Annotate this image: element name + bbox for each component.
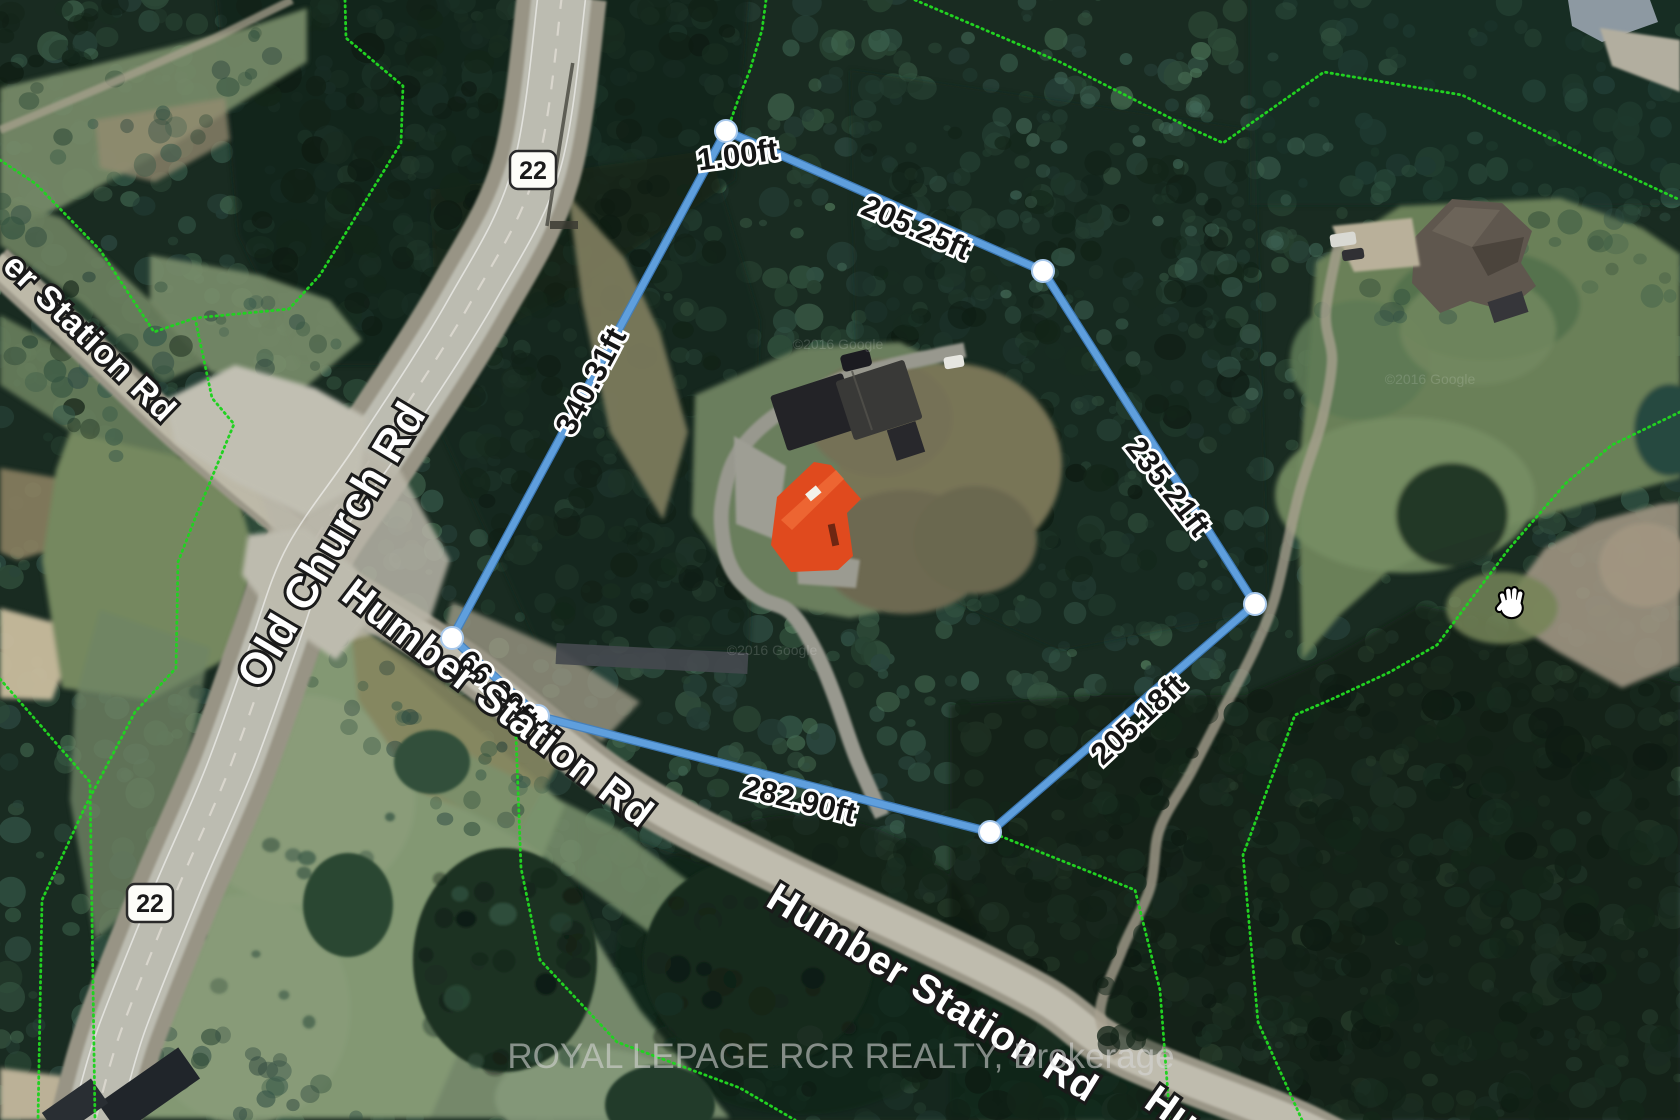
svg-text:©2016 Google: ©2016 Google [727,642,818,658]
svg-text:©2016 Google: ©2016 Google [793,336,884,352]
svg-text:22: 22 [136,890,164,918]
svg-text:©2016 Google: ©2016 Google [1385,371,1476,387]
svg-text:ROYAL LEPAGE RCR REALTY, Broke: ROYAL LEPAGE RCR REALTY, Brokerage [507,1037,1174,1076]
svg-text:22: 22 [519,157,547,185]
